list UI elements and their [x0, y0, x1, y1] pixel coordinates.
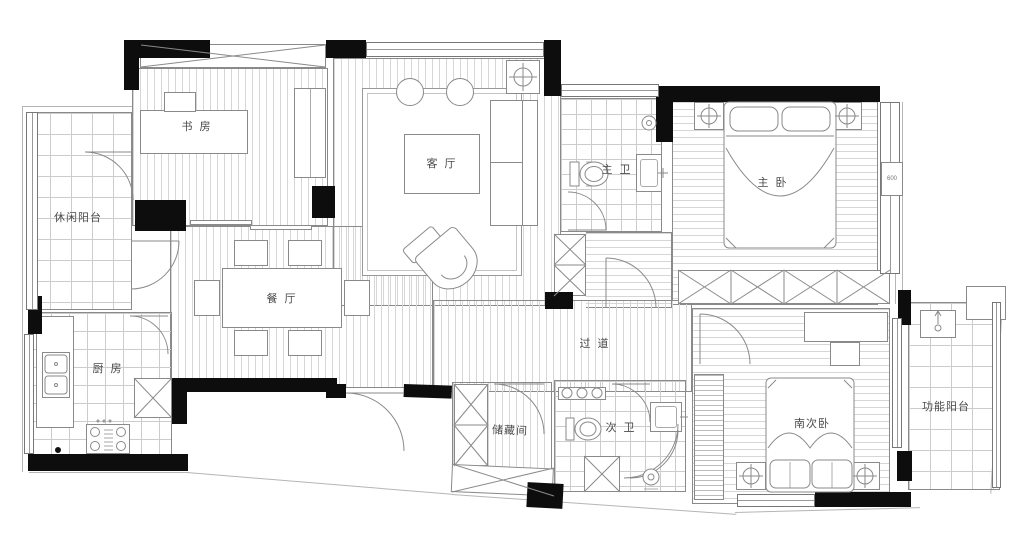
- south-lamp-left-box: [736, 462, 766, 490]
- south-bay-window: [737, 494, 815, 507]
- wall-study-bottomleft: [135, 200, 186, 231]
- dining-chair-3: [234, 330, 268, 356]
- living-label: 客 厅: [394, 157, 490, 171]
- dining-label: 餐 厅: [234, 292, 330, 306]
- dimension-600: 600: [887, 176, 897, 182]
- wall-top-mid: [326, 40, 366, 58]
- leisure-balcony-label: 休闲阳台: [30, 211, 126, 225]
- master-bath-window: [561, 84, 659, 97]
- dining-chair-1: [234, 240, 268, 266]
- corridor-cabinet: [554, 234, 586, 296]
- sliding-door-track-1: [190, 220, 252, 225]
- second-bath-label: 次 卫: [573, 421, 669, 435]
- study-chair: [164, 92, 196, 112]
- wall-study-top-v: [124, 40, 139, 90]
- wall-entry-right: [404, 384, 452, 399]
- door-arc-entry: [346, 393, 404, 451]
- south-bedroom-label: 南次卧: [764, 417, 860, 431]
- wall-bottom-center: [526, 482, 563, 509]
- sofa-back-line: [522, 100, 523, 226]
- second-bath-counter: [558, 387, 606, 400]
- dining-chair-6: [344, 280, 370, 316]
- living-pouf-2: [446, 78, 474, 106]
- south-wardrobe: [694, 374, 724, 500]
- wall-entry-left: [326, 384, 346, 398]
- dimension-box: 600: [881, 162, 903, 196]
- dining-chair-5: [194, 280, 220, 316]
- sofa-cushion-line: [490, 162, 523, 163]
- wall-south-bottom: [815, 492, 911, 507]
- study-label: 书 房: [149, 120, 245, 134]
- wall-corridor-topleft: [545, 292, 573, 309]
- master-vestibule-floor: [586, 232, 672, 308]
- dining-chair-4: [288, 330, 322, 356]
- wall-funcbalcony-left-bottom: [897, 451, 912, 481]
- sofa: [490, 100, 538, 226]
- study-cabinet: [294, 88, 326, 178]
- kitchen-left-window: [24, 334, 34, 454]
- side-table: [506, 60, 540, 94]
- boundary-line-top-left: [22, 106, 132, 107]
- master-bedroom-label: 主 卧: [725, 176, 821, 190]
- south-balcony-window: [892, 318, 902, 448]
- boundary-line-bottom-4: [735, 507, 920, 513]
- boundary-line-left: [22, 106, 23, 472]
- kitchen-stove-box: [86, 424, 130, 454]
- master-lamp-right-box: [832, 102, 862, 130]
- wall-study-bottomright: [312, 186, 335, 218]
- boundary-line-bottom-1: [29, 472, 189, 473]
- dining-chair-2: [288, 240, 322, 266]
- south-desk: [804, 312, 888, 342]
- living-pouf-1: [396, 78, 424, 106]
- kitchen-fridge: [134, 378, 172, 418]
- wall-living-topright: [544, 40, 561, 96]
- corridor-label: 过 道: [547, 337, 643, 351]
- washing-machine: [584, 456, 620, 492]
- floor-plan: 书 房 客 厅 休闲阳台 餐 厅 厨 房 主 卫 主 卧 过 道 储藏间 次 卫…: [0, 0, 1022, 541]
- master-lamp-left-box: [694, 102, 724, 130]
- master-wardrobe: [678, 270, 890, 304]
- master-bath-label: 主 卫: [569, 163, 665, 177]
- wall-kitchen-bottom: [28, 454, 188, 471]
- wall-master-top: [668, 86, 880, 102]
- mop-sink: [920, 310, 956, 338]
- south-chair: [830, 342, 860, 366]
- boundary-line-bottom-2: [187, 472, 452, 495]
- kitchen-floor-drain: [55, 447, 61, 453]
- living-top-window: [366, 42, 544, 57]
- sliding-door-track-2: [250, 225, 312, 230]
- functional-balcony-window: [992, 302, 1001, 488]
- south-lamp-right-box: [850, 462, 880, 490]
- functional-balcony-label: 功能阳台: [898, 400, 994, 414]
- kitchen-label: 厨 房: [60, 362, 156, 376]
- wall-dining-bottom: [172, 378, 337, 392]
